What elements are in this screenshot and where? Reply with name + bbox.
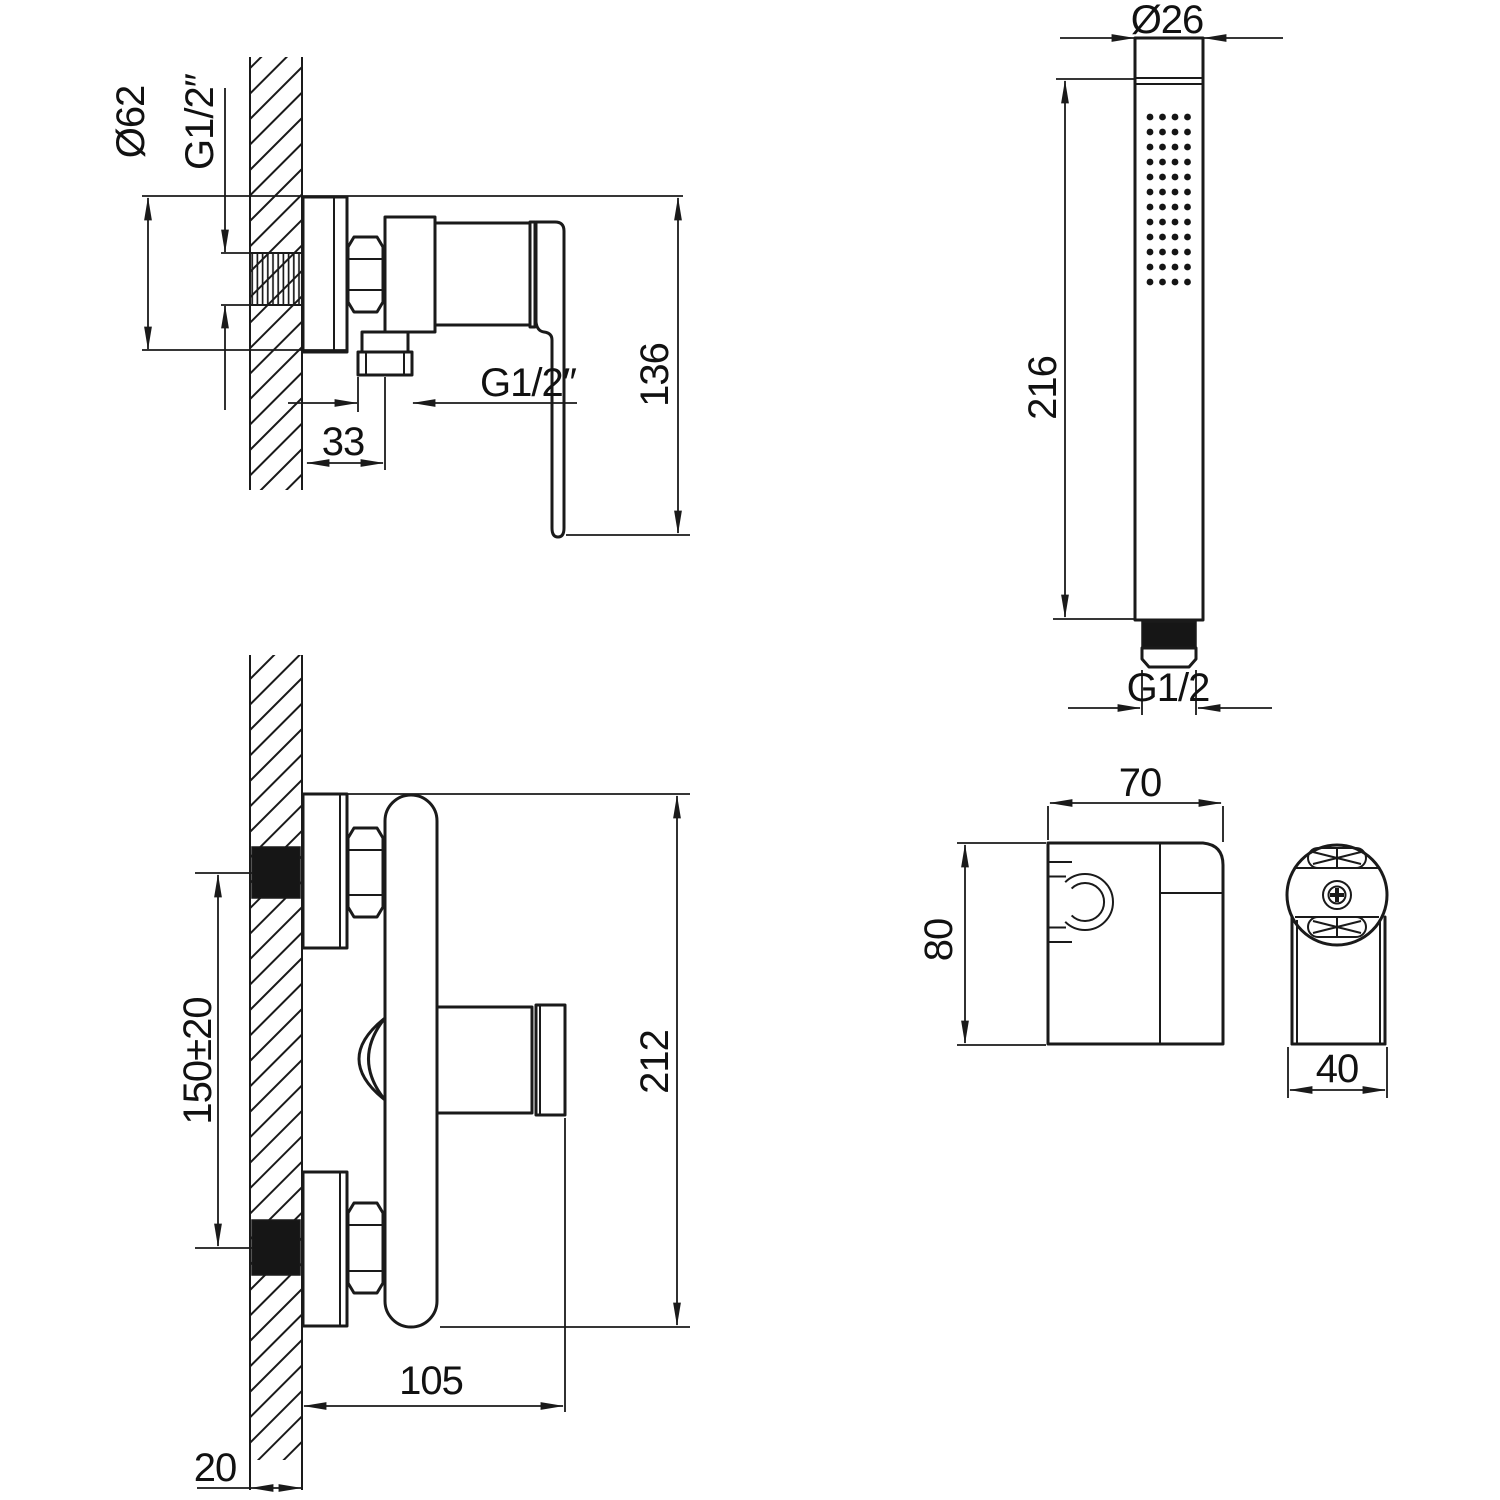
wall-section: [250, 655, 302, 1490]
label-holder-height: 80: [917, 919, 961, 962]
valve-body: [437, 1007, 532, 1113]
cartridge-cap: [536, 1005, 565, 1115]
label-escutcheon-diameter: Ø62: [109, 86, 153, 159]
handshower-body: [1135, 38, 1203, 620]
body-collar: [385, 217, 435, 332]
hex-nut: [348, 237, 383, 312]
hex-nut-top: [348, 828, 383, 917]
technical-drawing-page: Ø62 G1/2″ 136 G1/2″ 33: [0, 0, 1500, 1500]
label-total-height: 136: [633, 343, 677, 407]
label-wall-thread: G1/2″: [178, 73, 222, 170]
valve-body: [435, 223, 530, 325]
label-length: 216: [1021, 356, 1065, 420]
escutcheon: [303, 197, 347, 352]
label-outlet-offset: 33: [322, 420, 365, 464]
label-wall-thickness: 20: [194, 1446, 237, 1490]
shower-mixer-drawing: Ø62 G1/2″ 136 G1/2″ 33: [0, 0, 1500, 1500]
holder-body: [1048, 843, 1223, 1044]
wall-thread: [250, 253, 302, 305]
thread-cone: [1142, 648, 1196, 667]
label-inlet-spacing: 150±20: [176, 997, 220, 1124]
hex-nut-bottom: [348, 1203, 383, 1293]
escutcheon-top: [303, 794, 347, 948]
cartridge-cap: [530, 222, 535, 327]
label-head-diameter: Ø26: [1131, 0, 1204, 42]
label-depth: 105: [399, 1359, 463, 1403]
handshower-thread: [1142, 622, 1196, 648]
label-holder-depth: 40: [1316, 1047, 1359, 1091]
outlet-fitting: [358, 332, 412, 375]
inlet-thread-bottom: [252, 1220, 300, 1275]
label-holder-width: 70: [1119, 761, 1162, 805]
inlet-thread-top: [252, 847, 300, 898]
label-total-height: 212: [633, 1030, 677, 1094]
label-outlet-thread: G1/2″: [480, 361, 577, 405]
handle-front: [385, 795, 437, 1327]
escutcheon-bottom: [303, 1172, 347, 1326]
label-handshower-thread: G1/2: [1127, 666, 1210, 710]
